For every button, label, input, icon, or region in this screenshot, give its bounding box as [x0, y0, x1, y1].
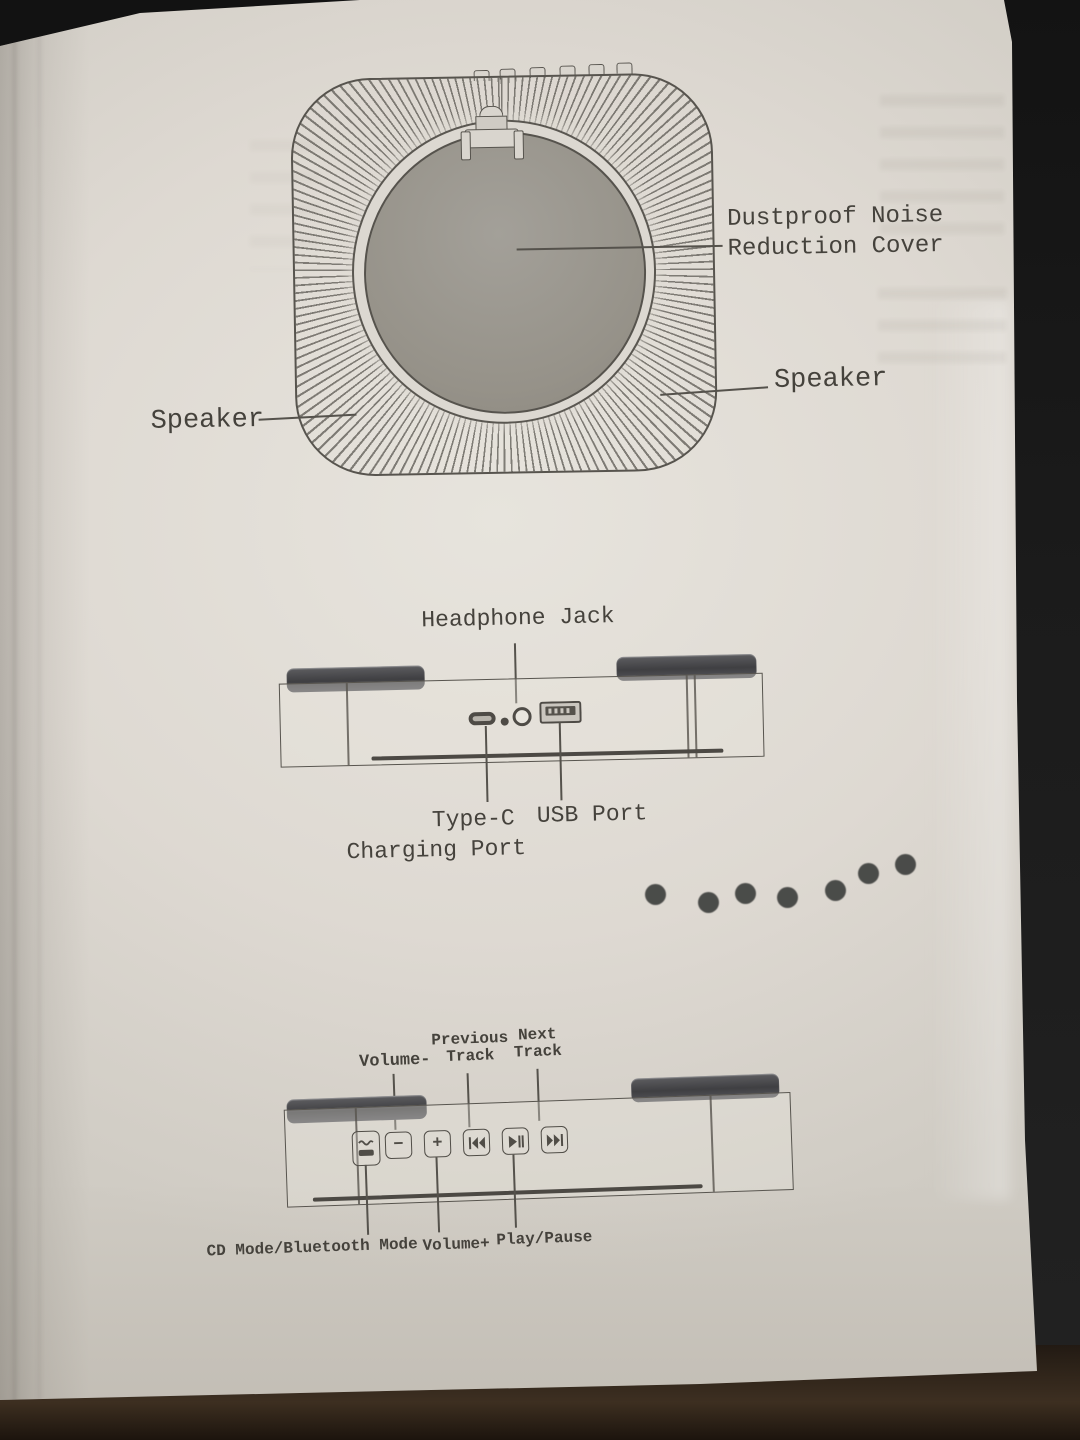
cover-label-line2: Reduction Cover [727, 231, 944, 265]
front-view-diagram: Dustproof Noise Reduction Cover Speaker … [126, 53, 963, 487]
panel-seam [709, 1096, 714, 1192]
panel-seam [346, 683, 349, 765]
latch-bracket [465, 128, 519, 148]
previous-track-label-line2: Track [432, 1047, 509, 1067]
cover-label-line1: Dustproof Noise [727, 201, 944, 235]
volume-plus-button: + [424, 1130, 452, 1158]
minus-icon: − [393, 1136, 404, 1155]
next-track-icon [545, 1132, 563, 1147]
bleed-through-dot [777, 887, 798, 908]
usb-port [539, 701, 581, 724]
previous-track-label: Previous Track [431, 1030, 509, 1067]
speaker-left-label: Speaker [150, 405, 264, 437]
previous-track-button [463, 1129, 491, 1157]
page-fold-crease [38, 0, 41, 1440]
bleed-through-dot [645, 884, 666, 905]
headphone-jack [512, 707, 531, 726]
volume-plus-label: Volume+ [422, 1235, 490, 1255]
controls-side-view-diagram: Volume- Previous Track Next Track − + [191, 1009, 819, 1275]
speaker-right-label: Speaker [774, 364, 888, 396]
base-shadow-line [371, 749, 723, 760]
cd-bt-mode-button [352, 1130, 381, 1166]
cd-bt-mode-label: CD Mode/Bluetooth Mode [206, 1235, 418, 1260]
speaker-grille-face [290, 72, 719, 477]
headphone-jack-label: Headphone Jack [421, 603, 615, 633]
latch-side-tab [514, 130, 525, 159]
bleed-through-dot [825, 880, 846, 901]
bleed-through-dot [858, 863, 879, 884]
panel-seam [686, 675, 689, 757]
play-pause-label: Play/Pause [496, 1228, 593, 1249]
latch-side-tab [461, 131, 472, 160]
volume-minus-label: Volume- [359, 1051, 431, 1072]
bleed-through-dot [735, 883, 756, 904]
bleed-through-dot [895, 854, 916, 875]
device-side-body [279, 673, 765, 768]
top-button-bump [616, 62, 632, 73]
bleed-through-dot [698, 892, 719, 913]
type-c-label-line1: Type-C [432, 805, 515, 833]
volume-minus-button: − [385, 1131, 413, 1159]
previous-track-icon [467, 1135, 485, 1150]
type-c-label-line2: Charging Port [346, 835, 526, 865]
panel-seam [694, 675, 697, 757]
page-fold-crease [13, 0, 16, 1440]
usb-port-label: USB Port [537, 800, 648, 828]
reset-pinhole [501, 717, 509, 725]
next-track-label-line2: Track [514, 1043, 563, 1062]
base-shadow-line [313, 1184, 703, 1201]
port-side-view-diagram: Headphone Jack Type-C US [277, 589, 783, 880]
play-pause-icon [507, 1134, 523, 1149]
next-track-button [540, 1126, 568, 1154]
cover-label: Dustproof Noise Reduction Cover [727, 201, 944, 265]
manual-page: Dustproof Noise Reduction Cover Speaker … [0, 0, 1080, 1440]
type-c-port [468, 712, 495, 726]
plus-icon: + [432, 1134, 443, 1153]
mode-switch-icon [356, 1135, 377, 1163]
play-pause-button [501, 1127, 529, 1155]
next-track-label: Next Track [513, 1026, 562, 1062]
